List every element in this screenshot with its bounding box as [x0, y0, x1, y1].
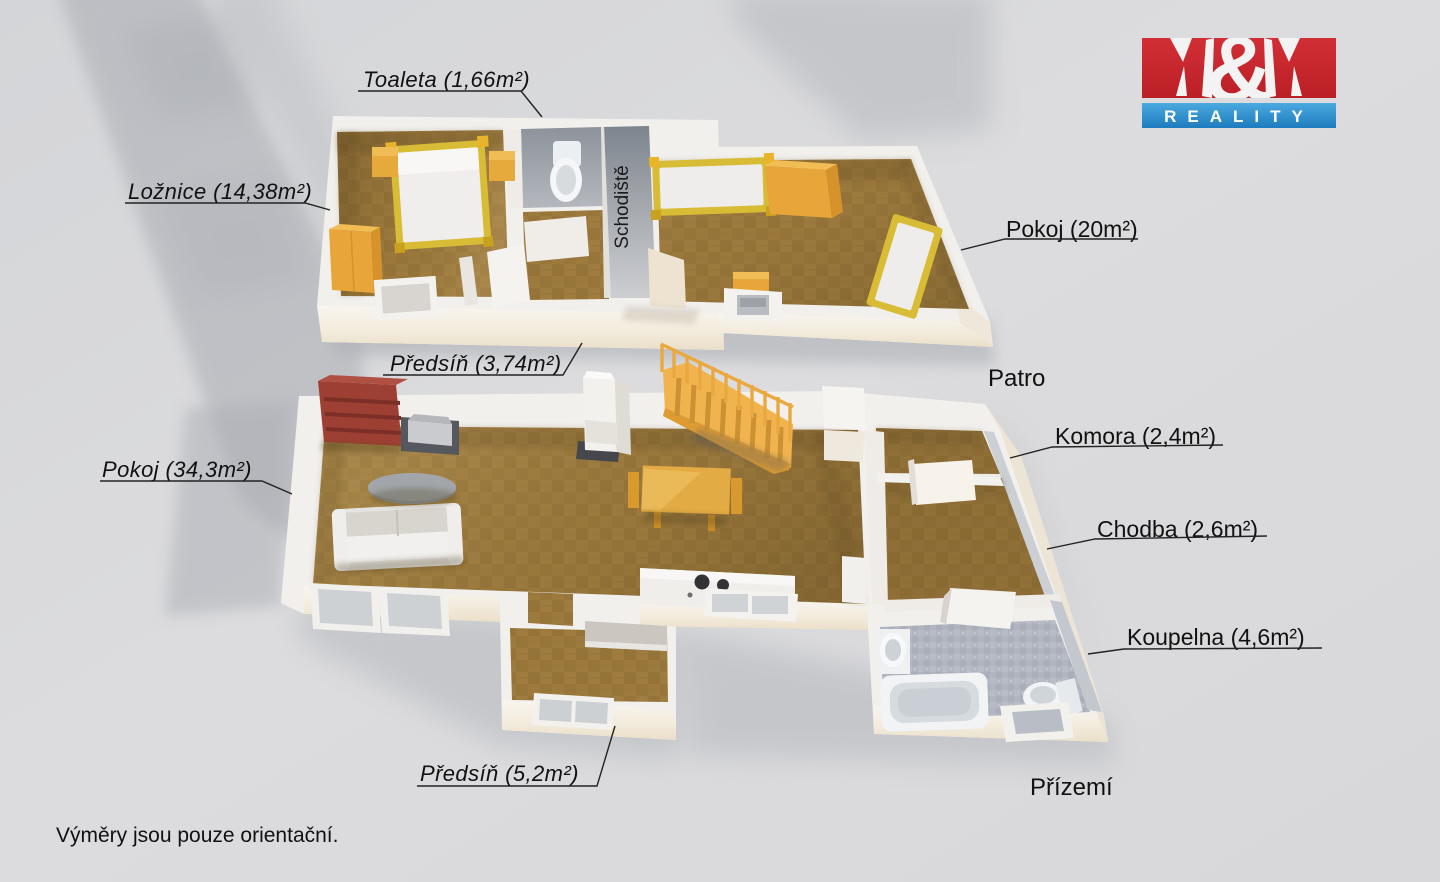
- svg-text:REALITY: REALITY: [1164, 107, 1314, 126]
- svg-text:Pokoj (34,3m²): Pokoj (34,3m²): [102, 457, 252, 482]
- svg-text:Patro: Patro: [988, 365, 1045, 392]
- svg-text:Ložnice (14,38m²): Ložnice (14,38m²): [128, 179, 312, 204]
- svg-text:Koupelna (4,6m²): Koupelna (4,6m²): [1127, 624, 1305, 650]
- svg-text:Předsíň (5,2m²): Předsíň (5,2m²): [420, 761, 579, 786]
- svg-text:Předsíň (3,74m²): Předsíň (3,74m²): [390, 351, 561, 376]
- svg-text:Schodiště: Schodiště: [612, 165, 633, 248]
- svg-text:Pokoj (20m²): Pokoj (20m²): [1006, 216, 1138, 242]
- svg-text:Toaleta (1,66m²): Toaleta (1,66m²): [363, 67, 530, 92]
- svg-text:Přízemí: Přízemí: [1030, 774, 1113, 801]
- svg-text:Výměry jsou pouze orientační.: Výměry jsou pouze orientační.: [56, 824, 338, 847]
